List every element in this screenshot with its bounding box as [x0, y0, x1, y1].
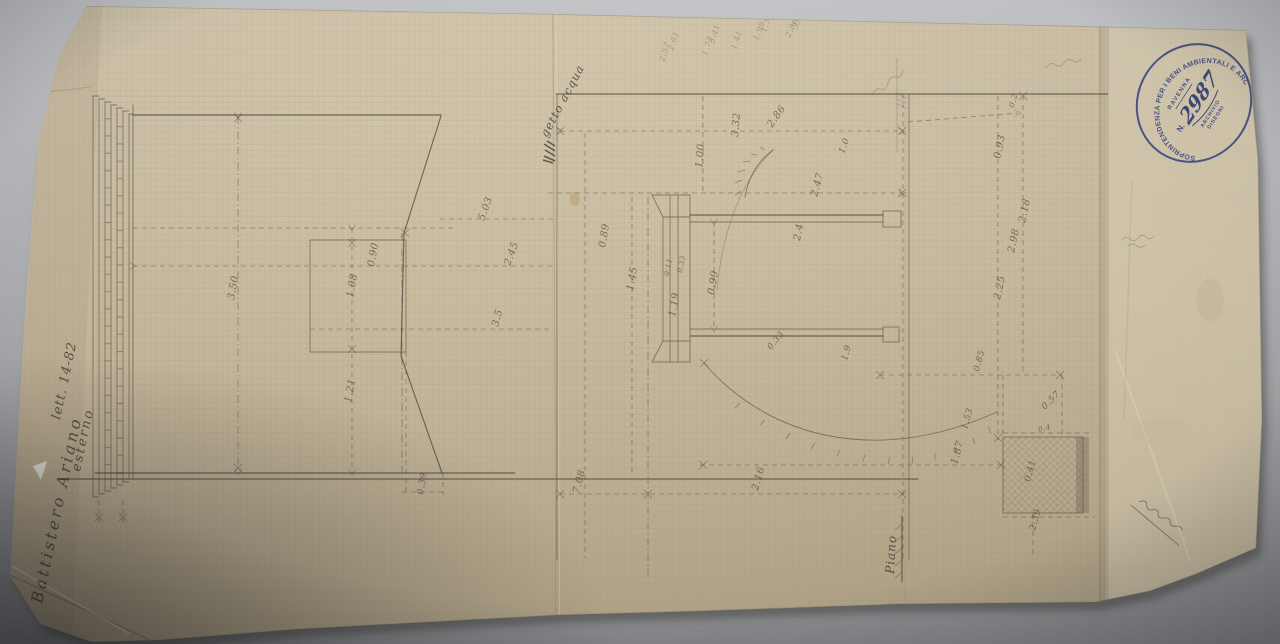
photographed-drawing-scene: Battistero Ariano esterno lett. 14-82 ge… — [0, 0, 1280, 644]
corner-shadow — [0, 0, 1280, 644]
archival-drawing-photo: Battistero Ariano esterno lett. 14-82 ge… — [0, 0, 1280, 644]
